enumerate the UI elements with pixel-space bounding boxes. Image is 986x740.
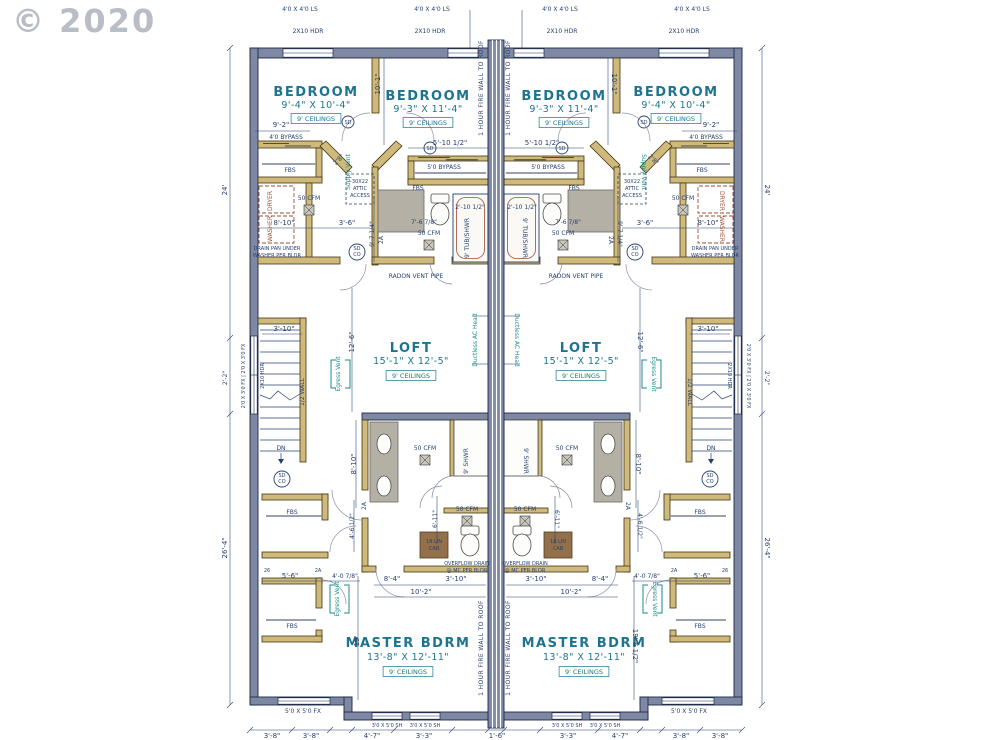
plan-label: BEDROOM [385, 89, 470, 104]
plan-label: 2A [378, 235, 385, 244]
plan-label: @ MC PER BLDR [505, 568, 546, 574]
plan-label: 4'-0 7/8" [634, 573, 660, 580]
plan-label: 3'-8" [264, 732, 281, 740]
plan-label: 26'-4" [221, 537, 229, 558]
plan-label: DN [276, 445, 285, 452]
plan-label: 3'-6" [339, 219, 356, 227]
plan-label: 26 [722, 568, 728, 574]
plan-label: 4'-0 7/8" [332, 573, 358, 580]
plan-label: 2'-2" [222, 371, 229, 385]
fire-wall [488, 40, 504, 728]
plan-label: 2'0 X 3'0 FX | 2'0 X 3'0 FX [745, 344, 751, 409]
plan-label: 24' [763, 185, 771, 196]
plan-label: 50 CFM [298, 195, 320, 202]
sink-basin [377, 434, 391, 454]
plan-label: FBS [568, 185, 579, 192]
plan-label: 3'0 X 5'0 SH [410, 723, 441, 729]
plan-label: CO [706, 479, 713, 485]
copyright-watermark: © 2020 [12, 2, 156, 40]
sink-basin [377, 476, 391, 496]
plan-label: 2A [624, 502, 631, 511]
plan-label: 1 HOUR FIRE WALL TO ROOF [505, 40, 512, 136]
plan-label: 3'-3" [416, 732, 433, 740]
plan-label: 2'-10 1/2" [507, 204, 537, 211]
plan-label: 5'0 BYPASS [531, 164, 565, 171]
plan-label: FBS [284, 167, 295, 174]
plan-label: DRYER [718, 191, 725, 211]
plan-label: CO [353, 252, 360, 258]
plan-label: 1/2 WALL [299, 377, 306, 406]
plan-label: CO [278, 479, 285, 485]
plan-label: FBS [696, 167, 707, 174]
plan-label: RADON VENT PIPE [389, 273, 444, 280]
plan-label: 3'-8" [712, 732, 729, 740]
plan-label: Egress Vent [335, 356, 342, 392]
plan-label: 2X10 HDR [726, 363, 732, 389]
plan-label: DRAIN PAN UNDER [692, 246, 739, 252]
plan-label: 9' SHWR [463, 448, 470, 474]
plan-label: 9'-4" X 10'-4" [281, 100, 350, 111]
plan-label: 5'0 X 5'0 FX [671, 708, 707, 715]
plan-label: 2A [361, 501, 368, 510]
plan-label: 6'-11" [432, 510, 439, 528]
plan-label: 18 LIN [426, 539, 442, 545]
plan-label: ATTIC [625, 186, 640, 192]
plan-label: 10'-1" [610, 73, 618, 94]
plan-label: 13'-8" X 12'-11" [543, 652, 625, 663]
plan-label: ATTIC [353, 186, 368, 192]
plan-label: 9' CEILINGS [392, 372, 430, 380]
plan-label: WASHER PER BLDR [691, 253, 740, 259]
plan-label: FBS [286, 509, 297, 516]
plan-label: 8'-10" [697, 219, 718, 227]
plan-label: 3'0 X 5'0 SH [552, 723, 583, 729]
plan-label: 18 LIN [550, 539, 566, 545]
plan-label: 8'-10" [273, 219, 294, 227]
plan-label: 4'-6 1/2" [636, 513, 643, 539]
plan-label: 8'-4" [592, 575, 609, 583]
plan-label: 2X10 HDR [415, 28, 446, 35]
plan-label: OVERFLOW DRAIN [444, 561, 490, 567]
plan-label: 3'-10" [525, 575, 546, 583]
plan-label: 8'-10" [634, 453, 642, 474]
plan-label: FBS [412, 185, 423, 192]
plan-label: 2A [315, 568, 322, 574]
window-stair-fx [251, 336, 257, 414]
plan-label: 1 HOUR FIRE WALL TO ROOF [478, 600, 485, 696]
plan-label: @ MC PER BLDR [447, 568, 488, 574]
plan-label: LOFT [560, 341, 603, 356]
plan-label: Egress Vent [650, 356, 657, 392]
plan-label: 50 CFM [418, 230, 440, 237]
plan-label: LOFT [390, 341, 433, 356]
plan-label: 3'-10" [273, 325, 294, 333]
plan-label: 3'-8" [673, 732, 690, 740]
plan-label: 2X10 HDR [669, 28, 700, 35]
plan-label: 9' CEILINGS [389, 668, 427, 676]
plan-label: Egress Vent [651, 581, 658, 617]
plan-label: 50 CFM [672, 195, 694, 202]
plan-label: 3'0 X 5'0 SH [590, 723, 621, 729]
plan-label: 30X22 [352, 179, 368, 185]
plan-label: CAB [429, 546, 440, 552]
plan-label: 26 [264, 568, 270, 574]
plan-label: RADON VENT PIPE [549, 273, 604, 280]
plan-label: Supply Vent [640, 154, 647, 190]
plan-label: 2A [607, 236, 614, 245]
plan-label: 8'-4" [384, 575, 401, 583]
plan-label: 9'-7 1/4" [616, 221, 623, 247]
plan-label: 3'0 X 5'0 SH [372, 723, 403, 729]
plan-label: 10'-2" [410, 588, 431, 596]
plan-label: Ductless AC Head [472, 313, 479, 367]
plan-label: 9' CEILINGS [657, 115, 695, 123]
plan-label: 4'-6 1/2" [349, 513, 356, 539]
dryer-appliance [259, 186, 294, 213]
plan-label: 4'0 BYPASS [689, 134, 723, 141]
plan-label: SD [344, 120, 351, 126]
plan-label: 15'-1" X 12'-5" [373, 356, 449, 367]
plan-label: 3'-6" [637, 219, 654, 227]
plan-label: 3'-8" [303, 732, 320, 740]
plan-label: 13'-8" X 12'-11" [367, 652, 449, 663]
plan-label: 1'-6" [489, 732, 506, 740]
plan-label: 9' CEILINGS [545, 119, 583, 127]
plan-label: BEDROOM [521, 89, 606, 104]
plan-label: 5'-10 1/2" [433, 139, 468, 147]
plan-label: 1/2 WALL [686, 378, 693, 407]
plan-label: 7'-6 7/8" [411, 219, 437, 226]
plan-label: 3'-3" [560, 732, 577, 740]
plan-label: 4'0 BYPASS [269, 134, 303, 141]
plan-label: 5'-6" [282, 572, 299, 580]
plan-label: 50 CFM [514, 506, 536, 513]
plan-label: 4'-7" [612, 732, 629, 740]
unit-left [250, 48, 496, 720]
plan-label: 7'-6 7/8" [555, 219, 581, 226]
plan-label: 19'-6 1/2" [631, 629, 639, 664]
plan-label: 26'-4" [763, 537, 771, 558]
plan-label: 4'0 X 4'0 LS [542, 6, 578, 13]
plan-label: 2'0 X 3'0 FX | 2'0 X 3'0 FX [241, 343, 247, 408]
plan-label: BEDROOM [273, 85, 358, 100]
plan-label: MASTER BDRM [522, 636, 647, 651]
plan-label: 9'-7 1/4" [369, 221, 376, 247]
plan-label: 50 CFM [556, 445, 578, 452]
plan-label: FBS [286, 623, 297, 630]
plan-label: Ductless AC Head [513, 313, 520, 367]
plan-label: ACCESS [350, 193, 370, 199]
plan-label: 9'-3" X 11'-4" [529, 104, 598, 115]
plan-label: 2X10 HDR [293, 28, 324, 35]
plan-label: 1 HOUR FIRE WALL TO ROOF [505, 600, 512, 696]
plan-label: 50 CFM [456, 506, 478, 513]
plan-label: DRYER [267, 191, 274, 211]
plan-label: SD [426, 146, 433, 152]
plan-label: 9'-2" [273, 121, 290, 129]
plan-label: 9' CEILINGS [562, 372, 600, 380]
plan-label: 24' [221, 185, 229, 196]
plan-label: 50 CFM [414, 445, 436, 452]
linen-cabinet [420, 532, 448, 558]
plan-label: 2X10 HDR [260, 363, 266, 389]
plan-label: 4'0 X 4'0 LS [414, 6, 450, 13]
plan-label: 19' [353, 636, 361, 647]
plan-label: MASTER BDRM [346, 636, 471, 651]
plan-label: 5'-6" [694, 572, 711, 580]
plan-label: 15'-1" X 12'-5" [543, 356, 619, 367]
plan-label: 2X10 HDR [547, 28, 578, 35]
plan-label: 9' TUB/SHWR [464, 218, 471, 258]
plan-label: 8'-10" [350, 453, 358, 474]
plan-label: 12'-6" [348, 331, 356, 352]
plan-label: 12'-6" [636, 331, 644, 352]
plan-label: CO [631, 252, 638, 258]
plan-label: FBS [694, 509, 705, 516]
plan-label: 9'-4" X 10'-4" [641, 100, 710, 111]
floor-plan-page: © 2020 [0, 0, 986, 740]
plan-label: WASHER PER BLDR [253, 253, 302, 259]
plan-label: Egress Vent [334, 581, 341, 617]
plan-label: BEDROOM [633, 85, 718, 100]
plan-label: 9' CEILINGS [565, 668, 603, 676]
toilet-bowl [461, 534, 479, 556]
plan-label: 5'-10 1/2" [525, 139, 560, 147]
plan-label: SD [640, 120, 647, 126]
toilet-tank [431, 194, 449, 203]
unit-right [496, 48, 742, 720]
plan-label: Supply Vent [345, 153, 352, 189]
plan-label: 10'-1" [374, 73, 382, 94]
plan-label: FBS [694, 623, 705, 630]
plan-label: 3'-10" [445, 575, 466, 583]
plan-label: WASHER [718, 216, 725, 242]
plan-label: 9' CEILINGS [297, 115, 335, 123]
plan-label: SD [558, 146, 565, 152]
plan-label: 2'-2" [763, 371, 770, 385]
plan-label: 4'0 X 4'0 LS [282, 6, 318, 13]
plan-label: CAB [553, 546, 564, 552]
plan-label: 9'-3" X 11'-4" [393, 104, 462, 115]
plan-label: 9' CEILINGS [409, 119, 447, 127]
staircase [260, 330, 300, 464]
plan-label: 9'-2" [703, 121, 720, 129]
plan-label: 9' TUB/SHWR [521, 218, 528, 258]
plan-label: 5'0 BYPASS [427, 164, 461, 171]
plan-label: 6'-11" [553, 510, 560, 528]
plan-label: OVERFLOW DRAIN [502, 561, 548, 567]
plan-label: 2A [671, 568, 678, 574]
floor-plan-drawing: © 2020 [0, 0, 986, 740]
master-shower [454, 420, 488, 476]
plan-label: 3'-10" [697, 325, 718, 333]
plan-label: 2'-10 1/2" [455, 204, 485, 211]
plan-label: 1 HOUR FIRE WALL TO ROOF [478, 40, 485, 136]
plan-label: DRAIN PAN UNDER [254, 246, 301, 252]
plan-label: 10'-2" [560, 588, 581, 596]
plan-label: 50 CFM [552, 230, 574, 237]
plan-label: ACCESS [622, 193, 642, 199]
plan-label: 5'0 X 5'0 FX [285, 708, 321, 715]
plan-label: 4'0 X 4'0 LS [674, 6, 710, 13]
plan-label: 30X22 [624, 179, 640, 185]
plan-label: 4'-7" [364, 732, 381, 740]
plan-label: DN [706, 445, 715, 452]
plan-label: 9' SHWR [522, 448, 529, 474]
